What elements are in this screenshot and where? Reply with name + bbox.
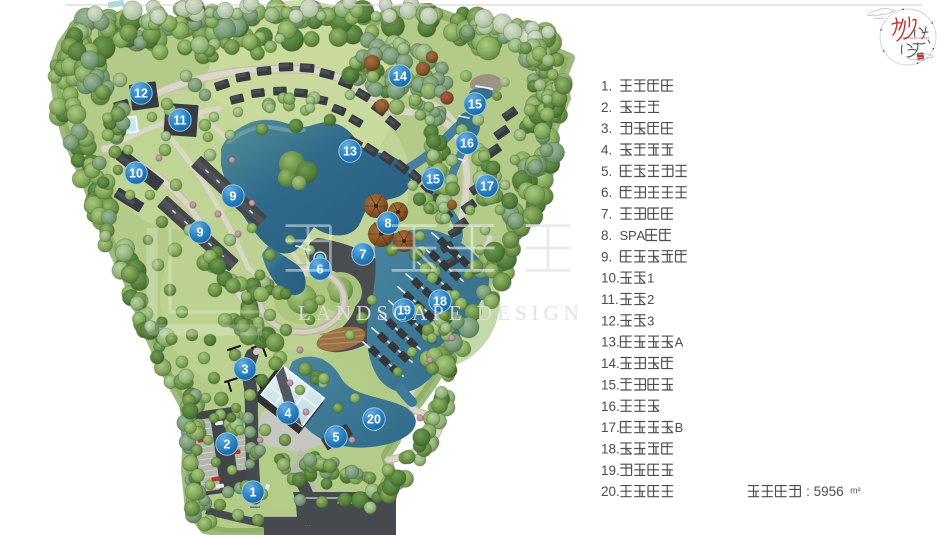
svg-text:3.: 3.	[601, 121, 612, 136]
svg-text:B: B	[675, 420, 684, 435]
svg-text:9.: 9.	[601, 249, 612, 264]
svg-text:P: P	[628, 228, 637, 243]
svg-text:5.: 5.	[601, 164, 612, 179]
svg-text:3: 3	[647, 313, 654, 328]
svg-text:7: 7	[360, 248, 367, 262]
svg-text:1: 1	[250, 486, 257, 500]
svg-text:9: 9	[197, 226, 204, 240]
svg-text:THE SHALLOW BAY: THE SHALLOW BAY	[901, 37, 930, 40]
svg-text:10.: 10.	[601, 271, 620, 286]
svg-text:10: 10	[129, 167, 143, 181]
svg-text:15.: 15.	[601, 377, 620, 392]
svg-text:4.: 4.	[601, 143, 612, 158]
svg-text:15: 15	[468, 98, 482, 112]
svg-text:20.: 20.	[601, 484, 620, 499]
svg-text:16: 16	[460, 137, 474, 151]
svg-text:8: 8	[385, 217, 392, 231]
svg-text:13.: 13.	[601, 335, 620, 350]
svg-text:A: A	[637, 228, 646, 243]
svg-text:20: 20	[367, 413, 381, 427]
svg-text:16.: 16.	[601, 399, 620, 414]
svg-text:18.: 18.	[601, 442, 620, 457]
svg-text:17: 17	[480, 180, 494, 194]
svg-text:4: 4	[285, 407, 292, 421]
svg-text:6.: 6.	[601, 185, 612, 200]
svg-text:2: 2	[647, 292, 654, 307]
svg-text:13: 13	[343, 145, 357, 159]
svg-text:14.: 14.	[601, 356, 620, 371]
svg-text:14: 14	[393, 70, 407, 84]
svg-text:1.: 1.	[601, 79, 612, 94]
svg-text:5: 5	[333, 431, 340, 445]
svg-text:1: 1	[647, 271, 654, 286]
svg-text:LANDSCAPE DESIGN: LANDSCAPE DESIGN	[298, 301, 584, 325]
svg-text:11: 11	[173, 114, 186, 128]
svg-text:2.: 2.	[601, 100, 612, 115]
svg-text:19.: 19.	[601, 463, 620, 478]
svg-text:m²: m²	[850, 486, 861, 496]
svg-text:····: ····	[305, 523, 312, 529]
svg-text:12: 12	[134, 87, 148, 101]
svg-text:3: 3	[242, 363, 249, 377]
svg-text:11.: 11.	[601, 292, 619, 307]
svg-text:8.: 8.	[601, 228, 612, 243]
svg-text:A: A	[675, 335, 684, 350]
svg-text:12.: 12.	[601, 313, 620, 328]
svg-text:17.: 17.	[601, 420, 620, 435]
svg-text:: 5956: : 5956	[806, 484, 844, 499]
svg-text:▬▬: ▬▬	[250, 504, 260, 510]
svg-text:7.: 7.	[601, 207, 612, 222]
svg-text:2: 2	[224, 438, 231, 452]
svg-text:9: 9	[230, 190, 237, 204]
svg-text:15: 15	[426, 173, 440, 187]
